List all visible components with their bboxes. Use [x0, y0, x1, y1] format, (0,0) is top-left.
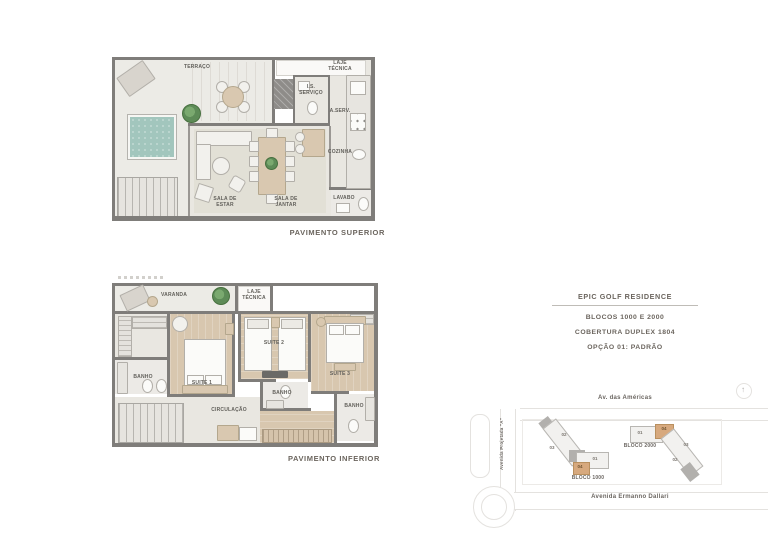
room-label-suite1: SUITE 1: [184, 381, 220, 387]
cabinet: [217, 425, 239, 441]
room-label-suite3: SUITE 3: [322, 372, 358, 378]
project-title: EPIC GOLF RESIDENCE: [552, 292, 698, 301]
armchair: [172, 316, 188, 332]
dimension-tick: [118, 276, 121, 279]
pillow: [329, 325, 344, 335]
wall: [371, 57, 375, 221]
info-unit: COBERTURA DUPLEX 1804: [552, 329, 698, 336]
wall: [115, 357, 170, 360]
pillow: [247, 319, 269, 329]
dimension-tick: [136, 276, 139, 279]
wall: [112, 443, 378, 447]
unit-label: 03: [681, 442, 691, 447]
room-label-circulacao: CIRCULAÇÃO: [205, 408, 253, 414]
unit-label: 03: [547, 445, 557, 450]
staircase: [118, 403, 184, 443]
wall: [241, 379, 276, 382]
elevator-shaft: [274, 79, 293, 109]
bed-bench: [334, 363, 356, 371]
washer: [350, 81, 366, 95]
dining-chair: [285, 156, 295, 167]
room-label-banho1: BANHO: [125, 375, 161, 381]
floorplan-superior: TERRAÇO LAJE TÉCNICA I.S. SERVIÇO A.SERV…: [112, 57, 375, 225]
bloco2000-label: BLOCO 2000: [615, 443, 665, 449]
dining-chair: [249, 156, 259, 167]
plant: [212, 287, 230, 305]
wall: [112, 57, 115, 221]
wall: [115, 311, 235, 314]
nightstand: [271, 317, 280, 328]
wall: [334, 394, 337, 443]
toilet: [348, 419, 359, 433]
unit-label-highlighted: 04: [659, 426, 669, 431]
dimension-tick: [130, 276, 133, 279]
wall: [188, 123, 274, 126]
dimension-tick: [124, 276, 127, 279]
room-label-banho3: BANHO: [336, 404, 372, 410]
room-label-laje: LAJE TÉCNICA: [322, 61, 358, 73]
caption-pavimento-superior: PAVIMENTO SUPERIOR: [265, 228, 385, 237]
plant: [182, 104, 201, 123]
stool: [295, 132, 305, 142]
toilet: [358, 197, 369, 211]
glass-wall: [329, 126, 331, 187]
dining-chair: [249, 171, 259, 182]
info-option: OPÇÃO 01: PADRÃO: [552, 344, 698, 351]
wall: [167, 394, 235, 397]
street-label-left: Avenida Projetada "A": [499, 412, 510, 476]
sink: [266, 400, 284, 409]
roundabout-inner: [481, 494, 507, 520]
room-label-lavabo: LAVABO: [331, 196, 357, 202]
coffee-table: [212, 157, 230, 175]
room-label-aserv: A.SERV.: [323, 109, 357, 115]
wall: [272, 123, 330, 126]
floorplan-inferior: VARANDA LAJE TÉCNICA SUITE 1 BANHO SUITE…: [112, 283, 378, 450]
street-label-bottom: Avenida Ermanno Dallari: [550, 494, 710, 500]
toilet: [142, 379, 153, 393]
wall: [374, 283, 378, 447]
room-label-suite2: SUITE 2: [256, 341, 292, 347]
wall: [112, 283, 115, 447]
info-panel: EPIC GOLF RESIDENCE BLOCOS 1000 E 2000 C…: [552, 292, 698, 351]
tv-console: [262, 371, 288, 378]
room-label-cozinha: COZINHA: [323, 150, 357, 156]
plan-sheet: TERRAÇO LAJE TÉCNICA I.S. SERVIÇO A.SERV…: [0, 0, 768, 543]
wall: [308, 314, 311, 382]
room-label-varanda: VARANDA: [152, 293, 196, 299]
toilet: [307, 101, 318, 115]
wardrobe: [132, 316, 167, 329]
site-map: ↑ Av. das Américas Avenida Projetada "A"…: [470, 378, 768, 543]
wall: [167, 311, 170, 397]
wall: [328, 75, 330, 123]
divider: [552, 305, 698, 306]
kitchen-island: [302, 129, 325, 157]
nightstand: [225, 323, 234, 335]
dimension-tick: [142, 276, 145, 279]
info-blocks: BLOCOS 1000 E 2000: [552, 314, 698, 321]
room-label-sala-estar: SALA DE ESTAR: [207, 197, 243, 209]
wardrobe: [118, 316, 132, 357]
room-label-banho2: BANHO: [264, 391, 300, 397]
glass-wall: [188, 126, 190, 216]
dimension-tick: [148, 276, 151, 279]
table-centerpiece-plant: [265, 157, 278, 170]
terrace-stairs: [117, 177, 178, 217]
room-label-laje: LAJE TÉCNICA: [236, 290, 272, 302]
nightstand: [316, 317, 326, 327]
wall: [311, 391, 349, 394]
pillow: [345, 325, 360, 335]
unit-label: 01: [635, 430, 645, 435]
north-arrow-icon: ↑: [736, 383, 752, 399]
wall: [293, 75, 328, 77]
wardrobe: [262, 429, 332, 443]
sofa-chaise: [196, 144, 211, 180]
terrace-table: [222, 86, 244, 108]
cabinet: [239, 427, 257, 441]
road-loop: [470, 414, 490, 478]
dimension-tick: [154, 276, 157, 279]
unit-label-highlighted: 04: [575, 464, 585, 469]
room-label-sala-jantar: SALA DE JANTAR: [268, 197, 304, 209]
wall: [260, 379, 263, 411]
wall: [112, 283, 378, 286]
bidet: [156, 379, 167, 393]
bloco1000-label: BLOCO 1000: [555, 475, 621, 481]
room-label-terraco: TERRAÇO: [175, 65, 219, 71]
pillow: [281, 319, 303, 329]
dining-chair: [285, 141, 295, 152]
caption-pavimento-inferior: PAVIMENTO INFERIOR: [260, 454, 380, 463]
stool: [295, 144, 305, 154]
street-label-top: Av. das Américas: [545, 395, 705, 401]
wall: [112, 216, 375, 221]
unit-label: 02: [670, 457, 680, 462]
stove: [350, 113, 366, 131]
unit-label: 02: [559, 432, 569, 437]
room-label-is-servico: I.S. SERVIÇO: [296, 85, 326, 97]
dining-chair: [266, 128, 278, 138]
pool: [128, 115, 176, 159]
unit-label: 01: [590, 456, 600, 461]
dining-chair: [285, 171, 295, 182]
wall: [238, 314, 241, 382]
wall: [293, 75, 295, 123]
dimension-tick: [160, 276, 163, 279]
dining-chair: [249, 141, 259, 152]
sink: [336, 203, 350, 213]
